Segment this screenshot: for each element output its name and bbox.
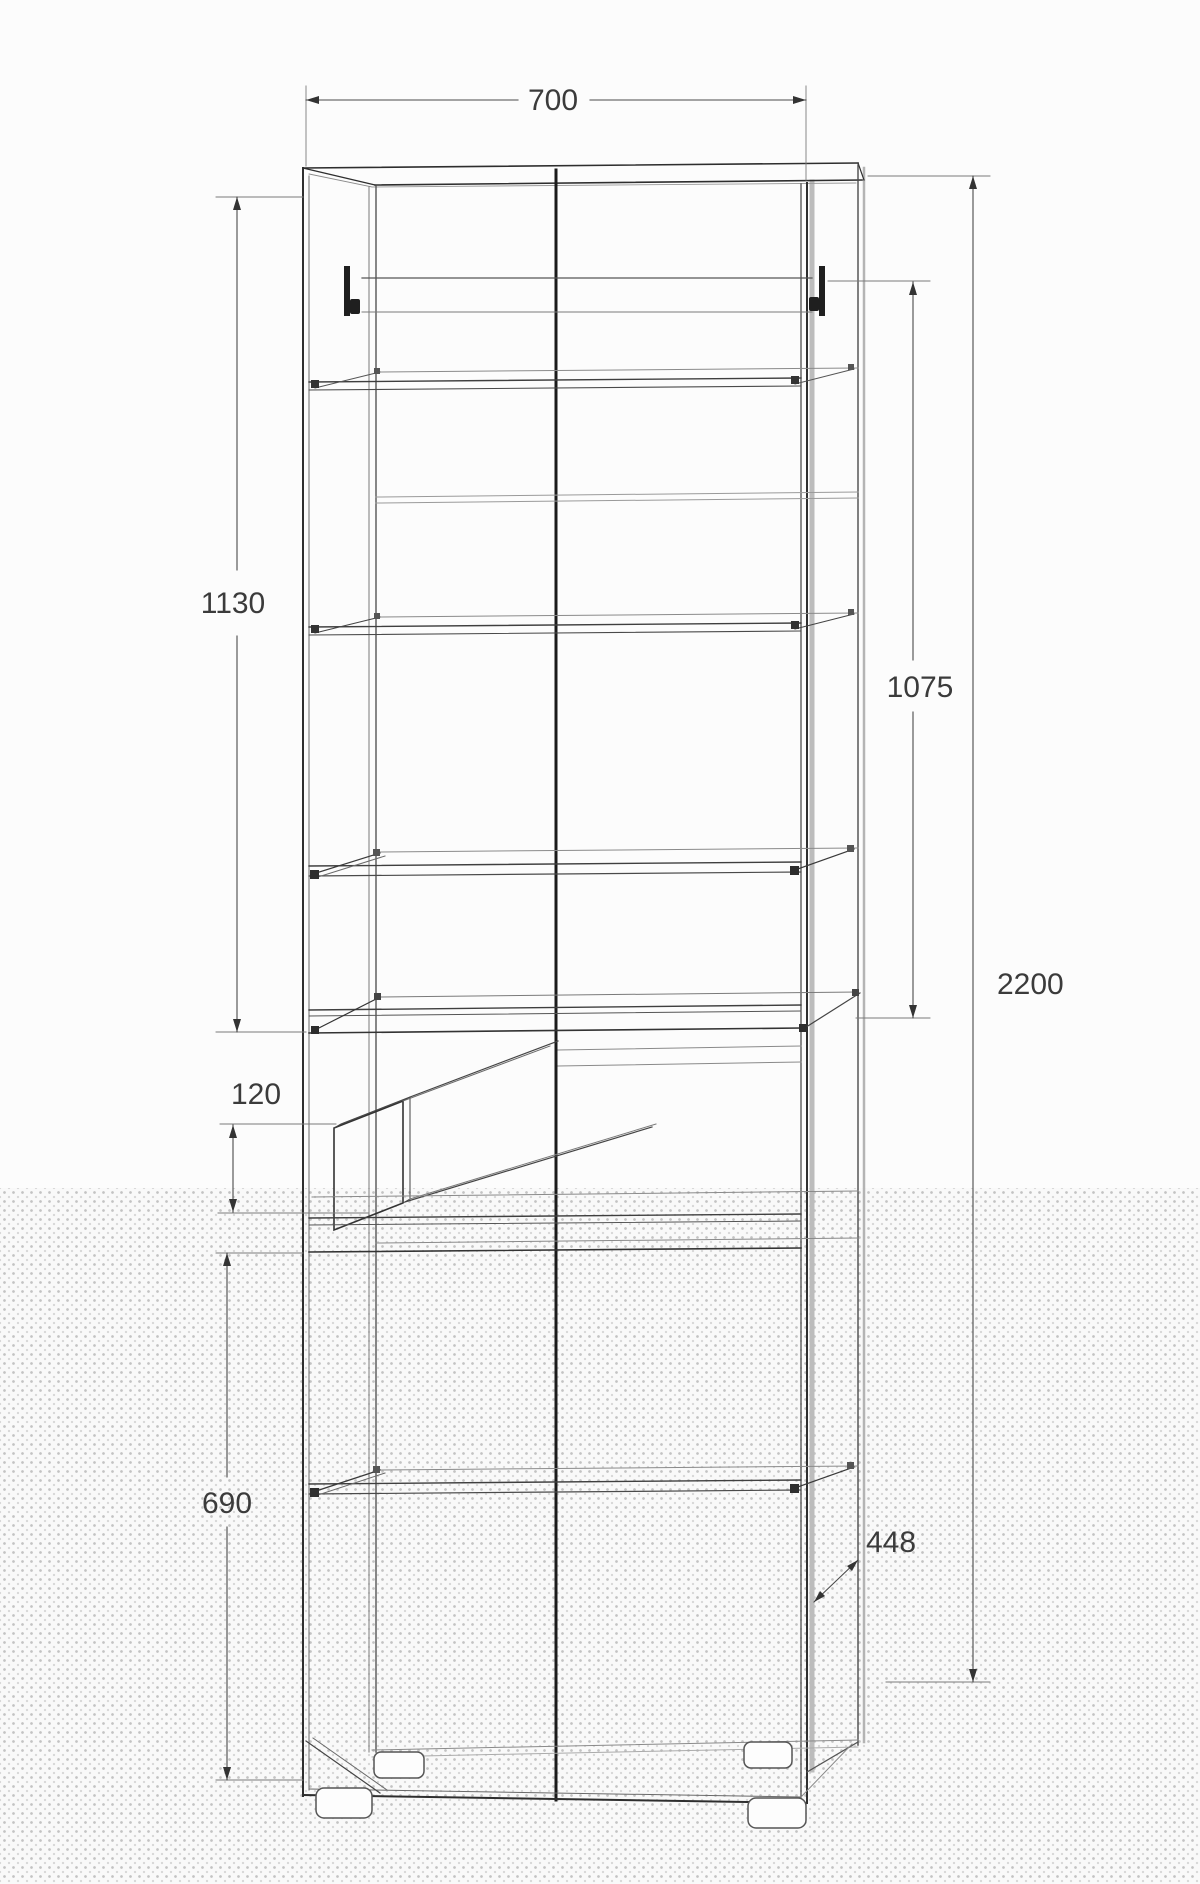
dimension-door-1075: 1075	[828, 281, 953, 1018]
mid-divider-slab	[309, 989, 860, 1034]
foot-back-right	[744, 1742, 792, 1768]
technical-drawing-page: 700 1130 1075	[0, 0, 1200, 1884]
open-drawer	[334, 1041, 656, 1230]
dim-1130-label: 1130	[201, 587, 266, 620]
dim-690-label: 690	[202, 1487, 252, 1520]
dim-120-label: 120	[231, 1078, 281, 1111]
cabinet-feet	[316, 1742, 806, 1828]
lower-shelf	[309, 1462, 858, 1497]
shelf-3	[309, 845, 858, 879]
left-door-handle-icon	[344, 266, 360, 316]
back-panel-seam	[376, 492, 858, 503]
foot-front-right	[748, 1798, 806, 1828]
cabinet-drawing-canvas: 700 1130 1075	[0, 0, 1200, 1884]
dim-700-label: 700	[528, 84, 578, 117]
foot-back-left	[374, 1752, 424, 1778]
drawer-opening-rails	[558, 1046, 801, 1066]
dimension-lower-690: 690	[202, 1253, 303, 1780]
cabinet-vertical-edges	[303, 165, 858, 1803]
handle-rail-lines	[362, 278, 812, 312]
cabinet-top-face	[303, 163, 864, 187]
dimension-upper-1130: 1130	[201, 197, 306, 1032]
cabinet-wireframe	[303, 163, 864, 1828]
dim-448-label: 448	[866, 1526, 916, 1559]
dimension-drawer-120: 120	[218, 1078, 368, 1213]
dim-1075-label: 1075	[887, 671, 954, 704]
dimensions: 700 1130 1075	[201, 84, 1064, 1780]
foot-front-left	[316, 1788, 372, 1818]
dim-2200-label: 2200	[997, 968, 1064, 1001]
lower-section-top-rails	[309, 1191, 858, 1252]
shelf-2	[309, 609, 858, 635]
dimension-total-2200: 2200	[868, 176, 1064, 1682]
shelf-1	[309, 364, 858, 390]
